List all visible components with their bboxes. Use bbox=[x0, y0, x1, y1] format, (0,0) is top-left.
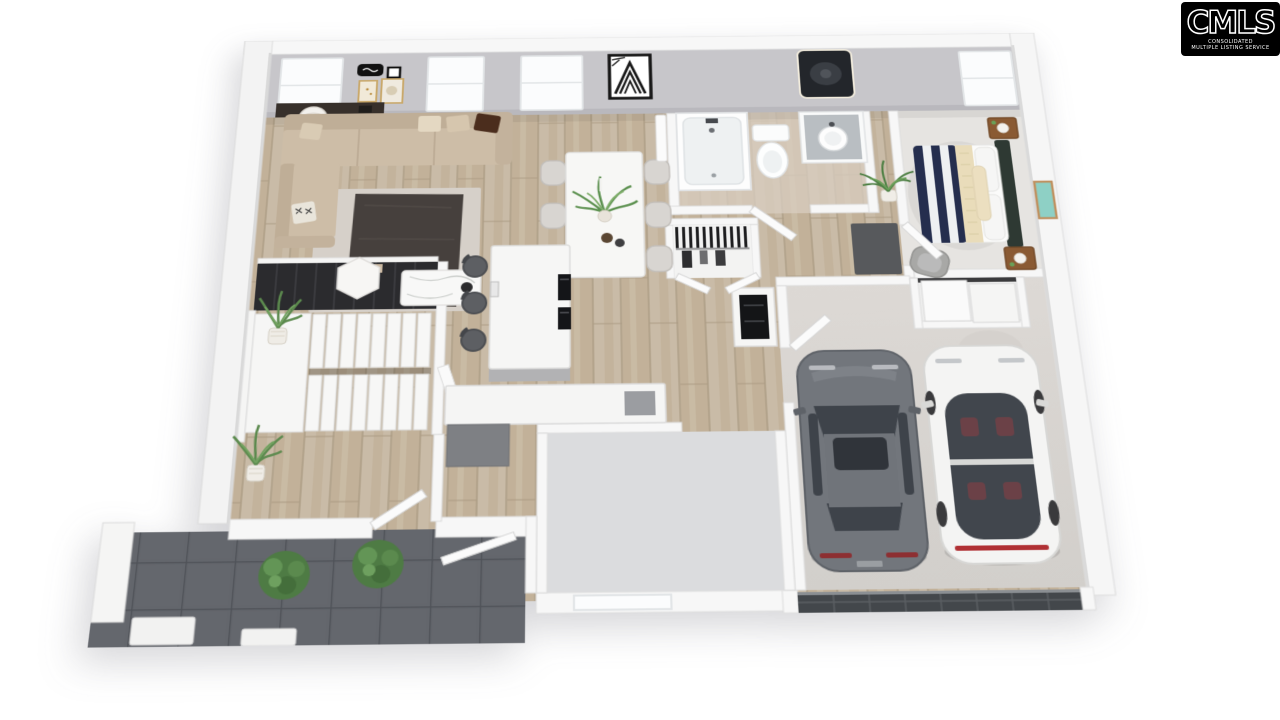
counter-gray-section bbox=[446, 424, 509, 466]
dark-brown-pillow bbox=[473, 113, 501, 133]
taillight-right bbox=[886, 552, 919, 557]
garment-dark-2 bbox=[715, 250, 726, 265]
dining-chairs-right bbox=[644, 160, 672, 272]
beige-pillow bbox=[446, 114, 470, 132]
island-faucet bbox=[490, 282, 498, 297]
cream-pillow bbox=[418, 116, 441, 132]
license-plate bbox=[857, 561, 883, 567]
headlight-right bbox=[872, 365, 899, 370]
garment-dark bbox=[682, 251, 692, 268]
hallway-runner-rug bbox=[851, 223, 903, 275]
bathroom-backlit-mirror bbox=[797, 50, 855, 98]
bedroom-closet bbox=[910, 277, 1031, 328]
cmls-logo-tagline: CONSOLIDATED MULTIPLE LISTING SERVICE bbox=[1191, 39, 1269, 51]
patterned-pillow bbox=[289, 201, 318, 224]
wall-oven-cabinet bbox=[732, 288, 777, 347]
floorplan-svg bbox=[77, 33, 1127, 648]
chaise-arm bbox=[274, 236, 336, 248]
closet-north-wall bbox=[665, 218, 758, 226]
garage-door-post-right bbox=[1080, 587, 1096, 610]
shower-fixture bbox=[706, 118, 719, 123]
vanity-sink bbox=[799, 111, 868, 163]
console-decor bbox=[358, 106, 372, 113]
shower-tub bbox=[676, 113, 751, 191]
entry-south-wall-right bbox=[436, 516, 537, 537]
sliding-door-panel-1 bbox=[921, 280, 971, 321]
taillight-strip bbox=[955, 545, 1050, 551]
corner-pillow bbox=[299, 122, 323, 140]
tan-frame-1 bbox=[358, 81, 377, 102]
entry-south-wall-left bbox=[228, 518, 372, 539]
flex-room-carpet bbox=[547, 431, 784, 593]
geometric-wall-art bbox=[609, 55, 651, 98]
garment-gray bbox=[699, 250, 707, 264]
porch-step-1 bbox=[129, 617, 195, 645]
nightstand-1 bbox=[987, 118, 1018, 139]
south-wall-filler bbox=[525, 516, 536, 593]
nightstand-2 bbox=[1004, 247, 1037, 270]
bed bbox=[912, 140, 1023, 248]
bedroom-window bbox=[958, 51, 1017, 105]
hall-closet bbox=[673, 225, 753, 279]
headlight-right bbox=[998, 358, 1025, 363]
floorplan-3d-wrapper bbox=[77, 33, 1127, 648]
island-appliance-2 bbox=[558, 307, 571, 329]
chaise-seat bbox=[288, 163, 340, 238]
cmls-tagline-line2: MULTIPLE LISTING SERVICE bbox=[1191, 45, 1269, 51]
floorplan-stage: CMLS CONSOLIDATED MULTIPLE LISTING SERVI… bbox=[0, 0, 1280, 720]
sliding-door-panel-2 bbox=[969, 283, 1020, 322]
closet-rod bbox=[676, 248, 750, 249]
garage-door-post-left bbox=[782, 590, 799, 613]
bathroom-south-wall-left bbox=[670, 205, 753, 214]
counter-sink bbox=[624, 391, 655, 415]
porch-step-2 bbox=[241, 629, 297, 646]
oven-front bbox=[739, 295, 769, 340]
kitchen-island bbox=[489, 245, 572, 382]
windshield bbox=[814, 405, 903, 438]
roof-crossbar bbox=[950, 459, 1034, 466]
hanging-clothes bbox=[675, 226, 749, 249]
black-square-frame bbox=[388, 67, 401, 77]
dining-window bbox=[521, 56, 583, 111]
living-window-2 bbox=[426, 57, 484, 112]
island-appliance-1 bbox=[558, 274, 571, 300]
sunroof bbox=[832, 437, 889, 470]
flex-west-wall bbox=[536, 433, 547, 593]
headlight-left bbox=[935, 359, 962, 364]
open-door-against-wall bbox=[655, 115, 667, 161]
flex-room-window bbox=[574, 595, 672, 610]
taillight-left bbox=[820, 553, 852, 558]
bedroom-teal-wall-art bbox=[1034, 182, 1057, 219]
cmls-logo-wordmark: CMLS bbox=[1187, 8, 1275, 38]
bar-stools bbox=[461, 255, 487, 351]
cmls-logo: CMLS CONSOLIDATED MULTIPLE LISTING SERVI… bbox=[1181, 2, 1280, 56]
garage-door bbox=[797, 589, 1083, 613]
garage-north-wall bbox=[776, 276, 911, 286]
headlight-left bbox=[809, 365, 836, 370]
